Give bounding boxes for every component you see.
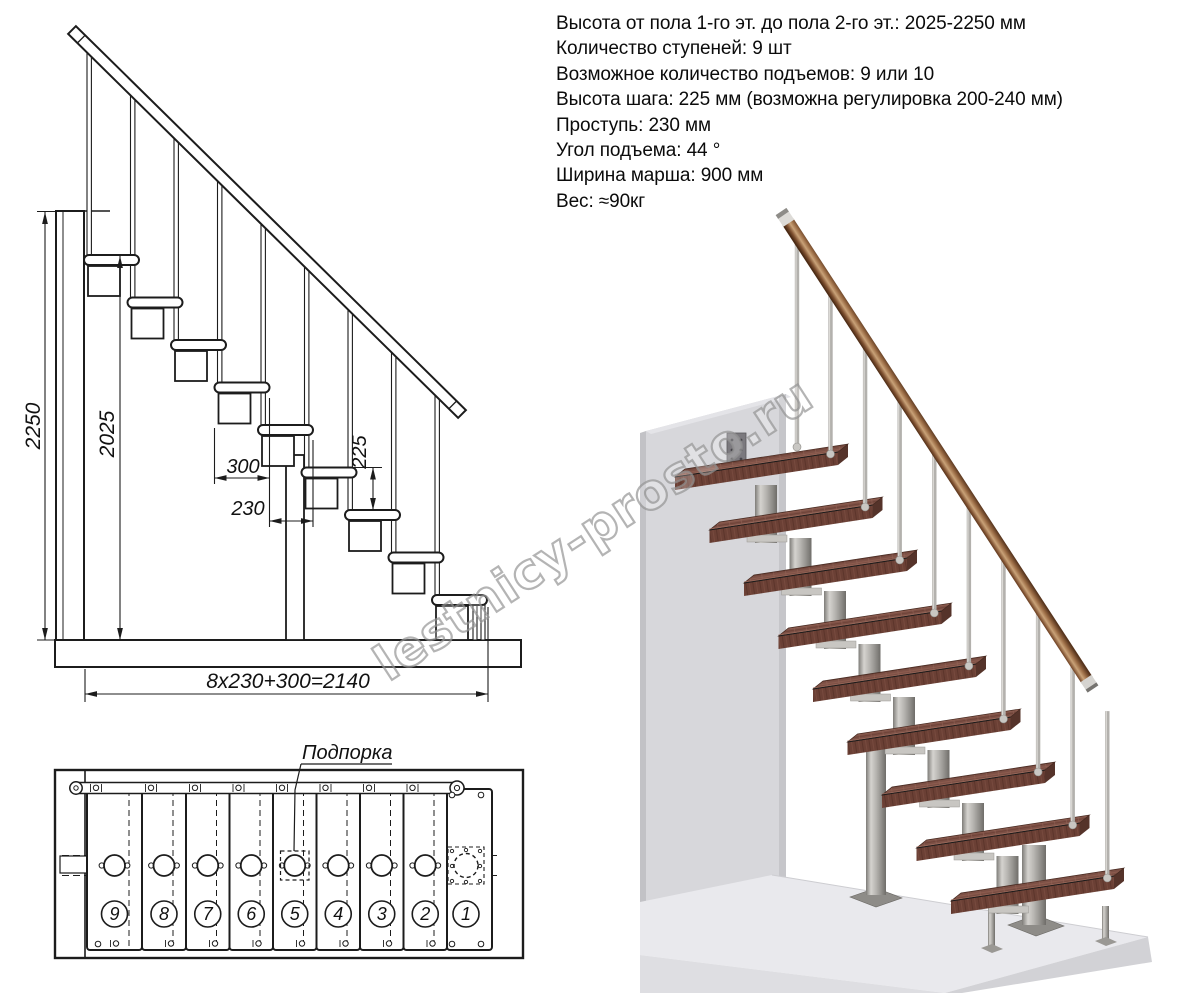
spec-line-weight: Вес: ≈90кг <box>556 189 1116 214</box>
spec-line-height-range: Высота от пола 1-го эт. до пола 2-го эт.… <box>556 11 1116 36</box>
render-3d <box>640 212 1152 993</box>
support-label: Подпорка <box>302 742 393 764</box>
spec-line-tread: Проступь: 230 мм <box>556 113 1116 138</box>
plan-step-number: 2 <box>419 904 430 924</box>
plan-step-number: 9 <box>109 904 119 924</box>
plan-view-drawing: 987654321 <box>55 764 523 958</box>
spec-line-width: Ширина марша: 900 мм <box>556 163 1116 188</box>
plan-step-number: 3 <box>377 904 387 924</box>
dim-total-height-label: 2250 <box>22 402 45 450</box>
plan-step-number: 5 <box>290 904 301 924</box>
spec-line-step-count: Количество ступеней: 9 шт <box>556 36 1116 61</box>
dim-stair-height-label: 2025 <box>96 410 119 458</box>
plan-step-number: 1 <box>461 904 471 924</box>
spec-list: Высота от пола 1-го эт. до пола 2-го эт.… <box>556 11 1116 214</box>
dim-step-run-label: 230 <box>230 498 264 520</box>
plan-step-number: 4 <box>333 904 343 924</box>
spec-line-step-height: Высота шага: 225 мм (возможна регулировк… <box>556 87 1116 112</box>
spec-line-angle: Угол подъема: 44 ° <box>556 138 1116 163</box>
stair-spec-sheet: 987654321 2250 2025 300 230 225 8x230+30… <box>0 0 1191 993</box>
plan-step-number: 7 <box>203 904 214 924</box>
dim-riser-height-label: 225 <box>349 434 371 469</box>
plan-step-number: 6 <box>246 904 257 924</box>
dim-total-run-label: 8x230+300=2140 <box>206 670 370 693</box>
spec-line-rise-count: Возможное количество подъемов: 9 или 10 <box>556 62 1116 87</box>
side-view-drawing <box>37 26 521 702</box>
dim-tread-depth-label: 300 <box>226 456 259 478</box>
plan-step-number: 8 <box>159 904 169 924</box>
